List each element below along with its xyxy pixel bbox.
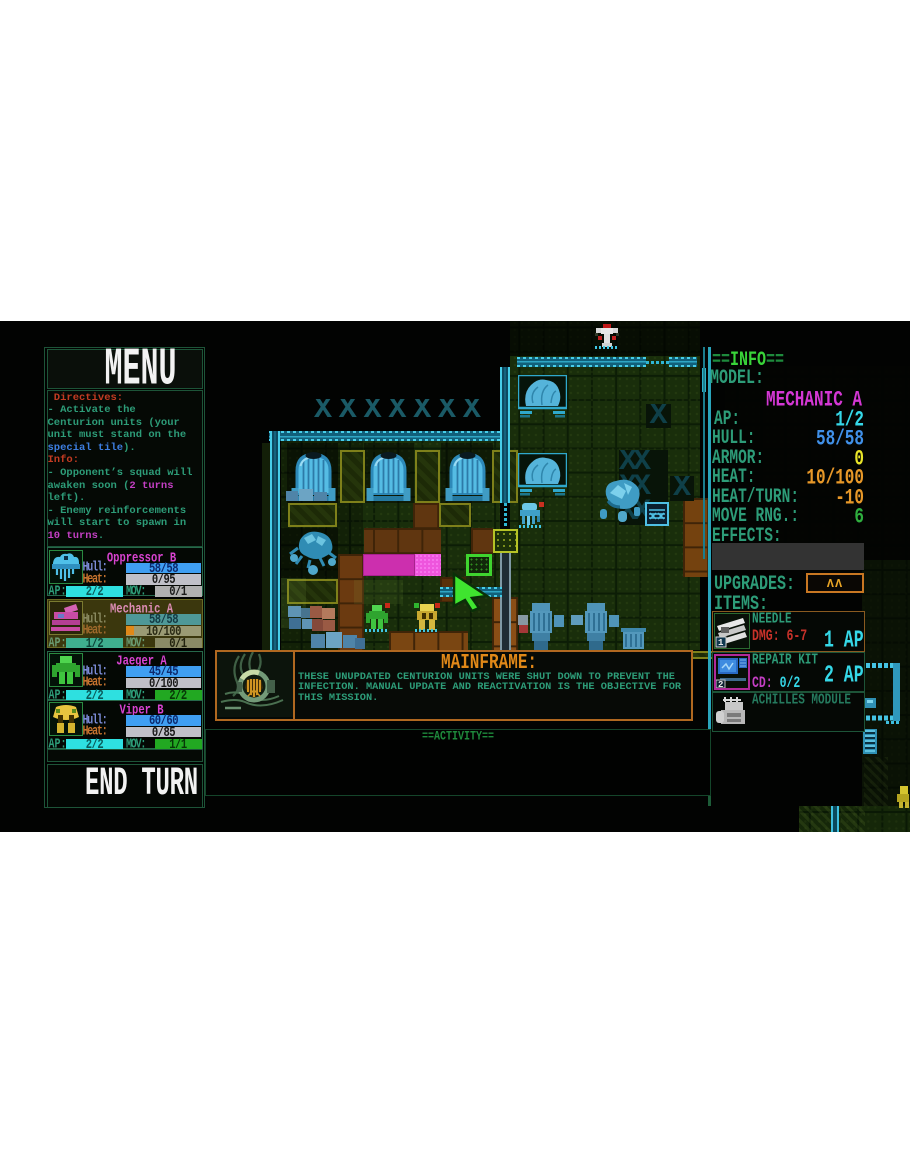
svg-text:2: 2 [718, 680, 723, 688]
svg-text:1: 1 [718, 638, 724, 648]
